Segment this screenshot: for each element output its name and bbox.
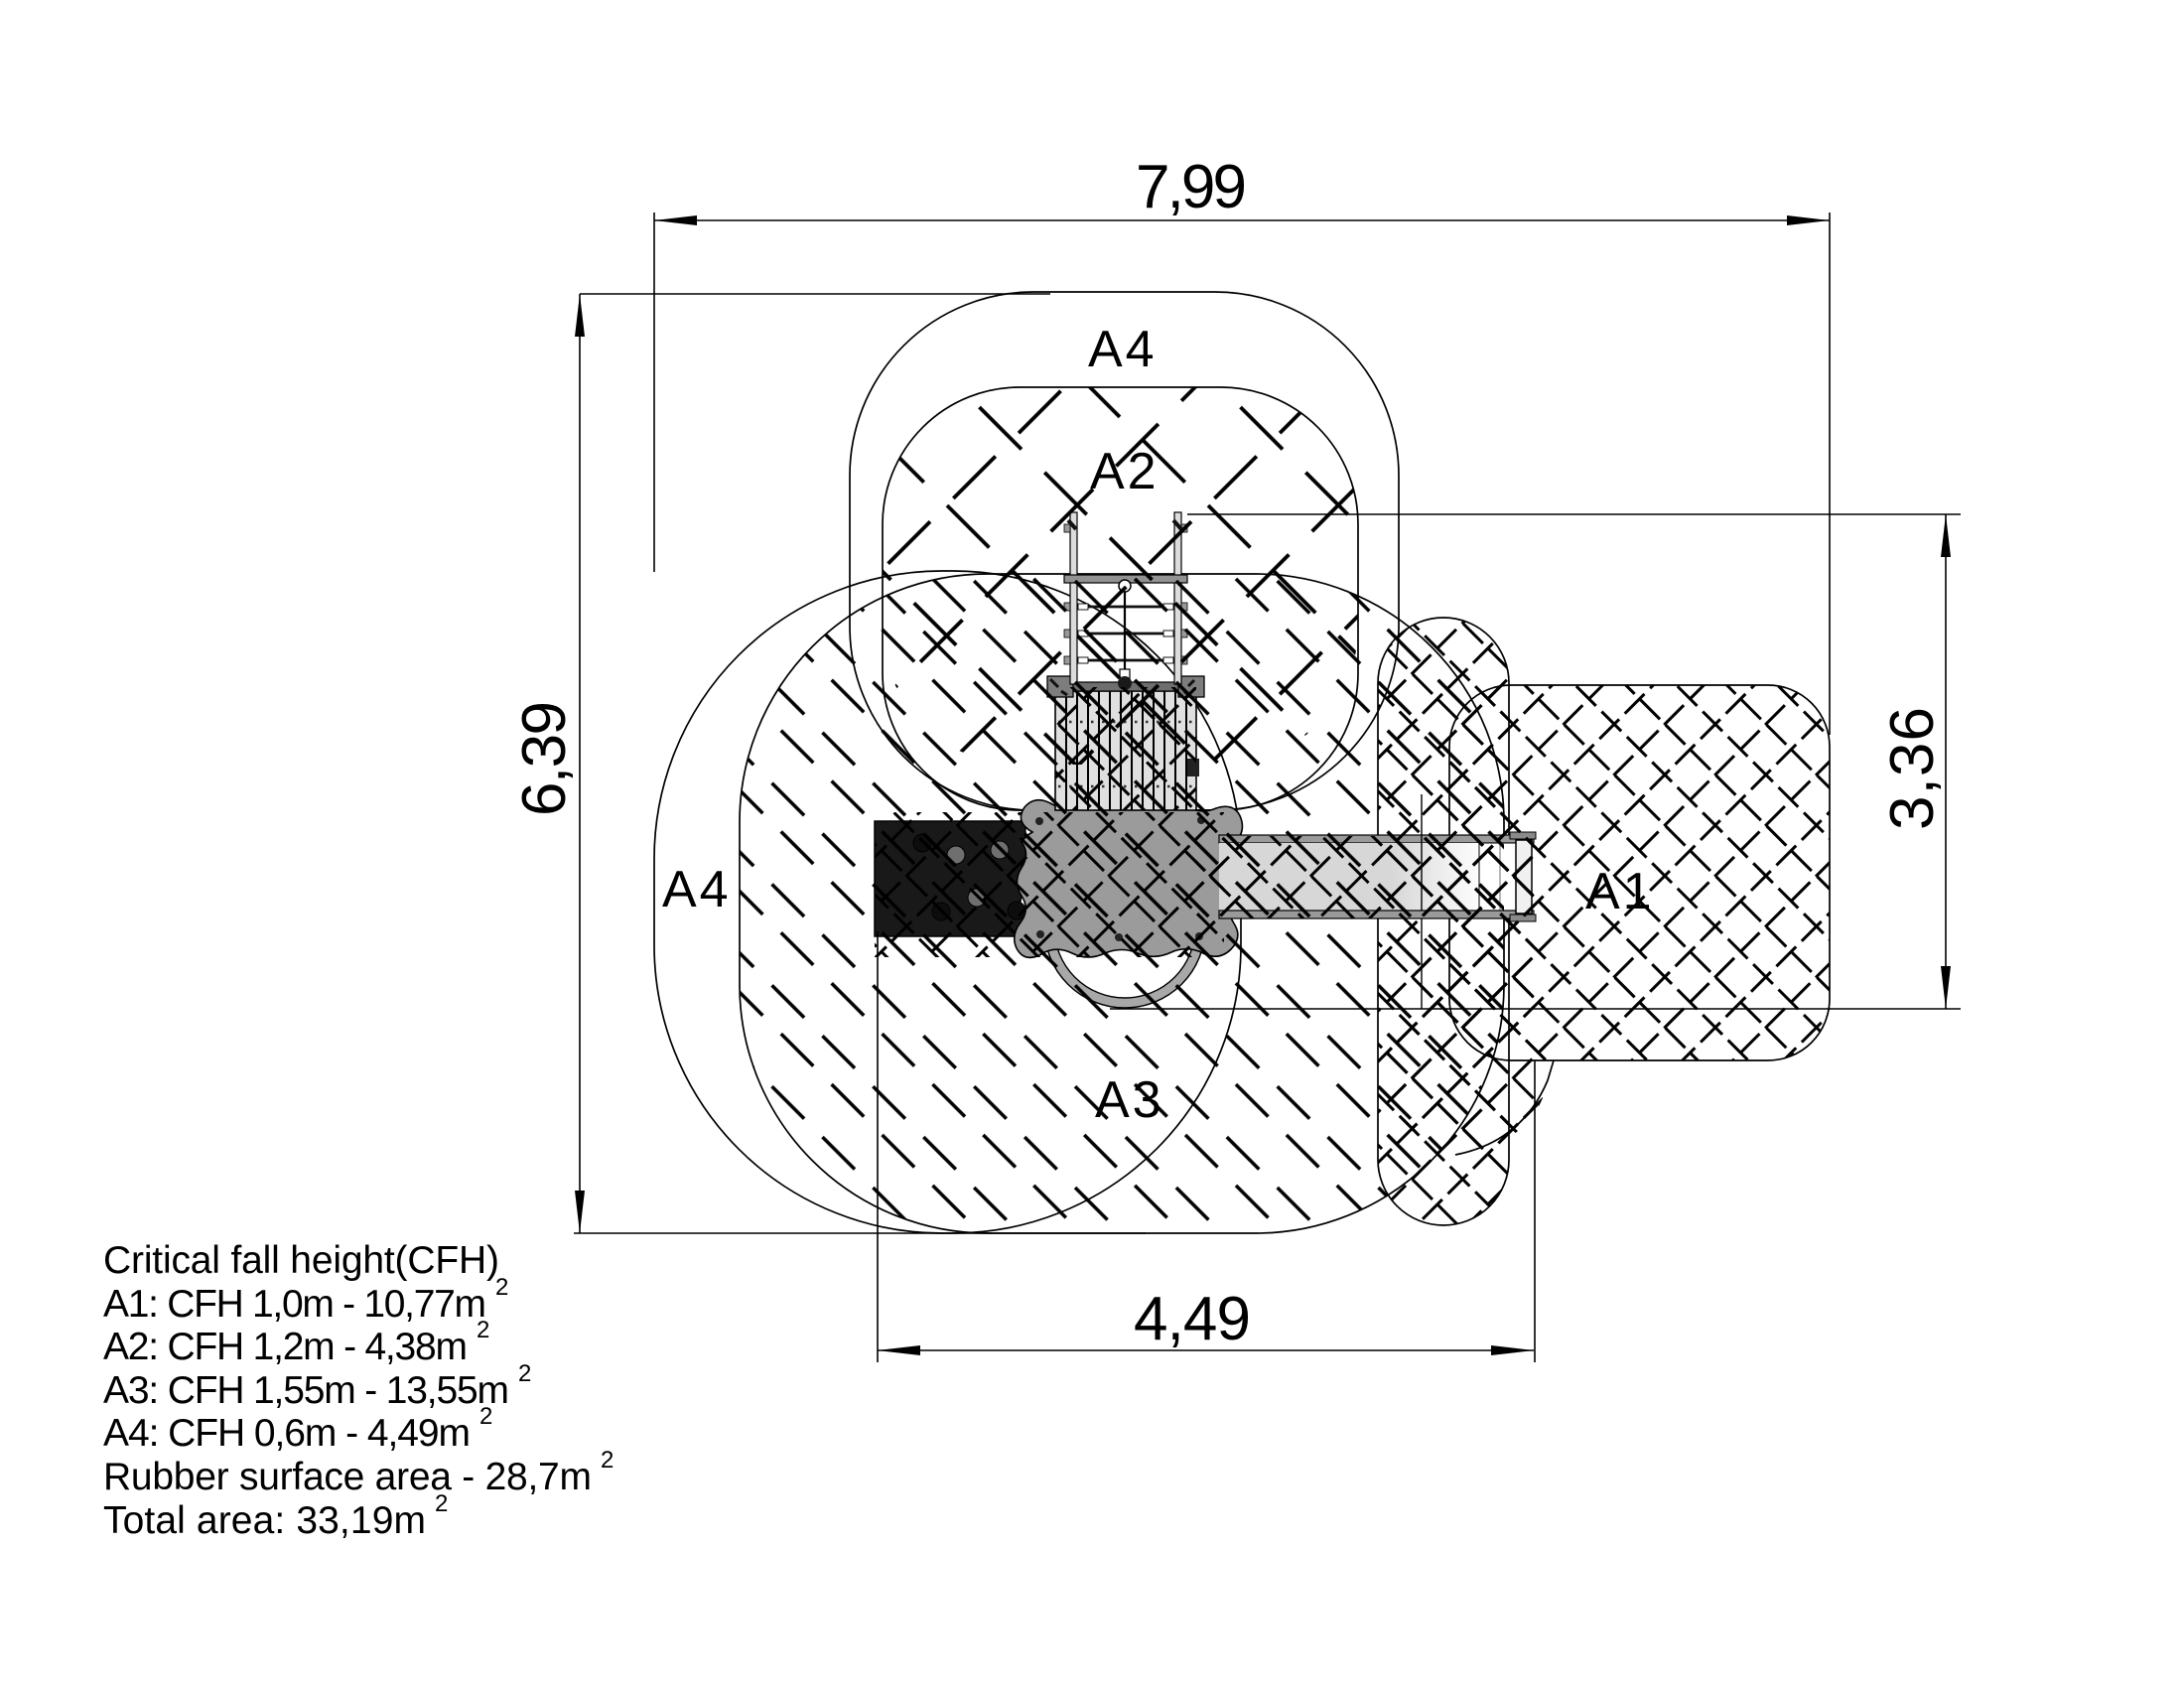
svg-text:2: 2 [477, 1317, 489, 1343]
svg-text:Total area: 33,19m: Total area: 33,19m [103, 1499, 426, 1542]
svg-text:A1: A1 [1585, 863, 1655, 920]
svg-text:2: 2 [601, 1447, 614, 1474]
svg-text:Critical fall height(CFH): Critical fall height(CFH) [103, 1239, 499, 1282]
svg-text:A3: CFH 1,55m - 13,55m: A3: CFH 1,55m - 13,55m [103, 1369, 509, 1412]
svg-text:2: 2 [479, 1403, 492, 1430]
svg-text:7,99: 7,99 [1136, 153, 1247, 221]
svg-text:2: 2 [435, 1490, 448, 1517]
svg-text:3,36: 3,36 [1878, 707, 1947, 830]
svg-text:A2: A2 [1090, 443, 1160, 500]
svg-text:A3: A3 [1095, 1071, 1164, 1129]
svg-text:4,49: 4,49 [1134, 1285, 1251, 1353]
svg-text:2: 2 [518, 1360, 531, 1387]
svg-text:A4: A4 [662, 861, 732, 918]
svg-text:A2: CFH 1,2m - 4,38m: A2: CFH 1,2m - 4,38m [103, 1326, 468, 1368]
svg-text:A1: CFH 1,0m - 10,77m: A1: CFH 1,0m - 10,77m [103, 1283, 486, 1326]
svg-text:2: 2 [495, 1274, 508, 1301]
svg-text:A4: A4 [1088, 321, 1158, 378]
svg-text:A4: CFH 0,6m - 4,49m: A4: CFH 0,6m - 4,49m [103, 1412, 471, 1455]
svg-text:6,39: 6,39 [510, 701, 579, 816]
svg-text:Rubber surface area - 28,7m: Rubber surface area - 28,7m [103, 1456, 592, 1498]
